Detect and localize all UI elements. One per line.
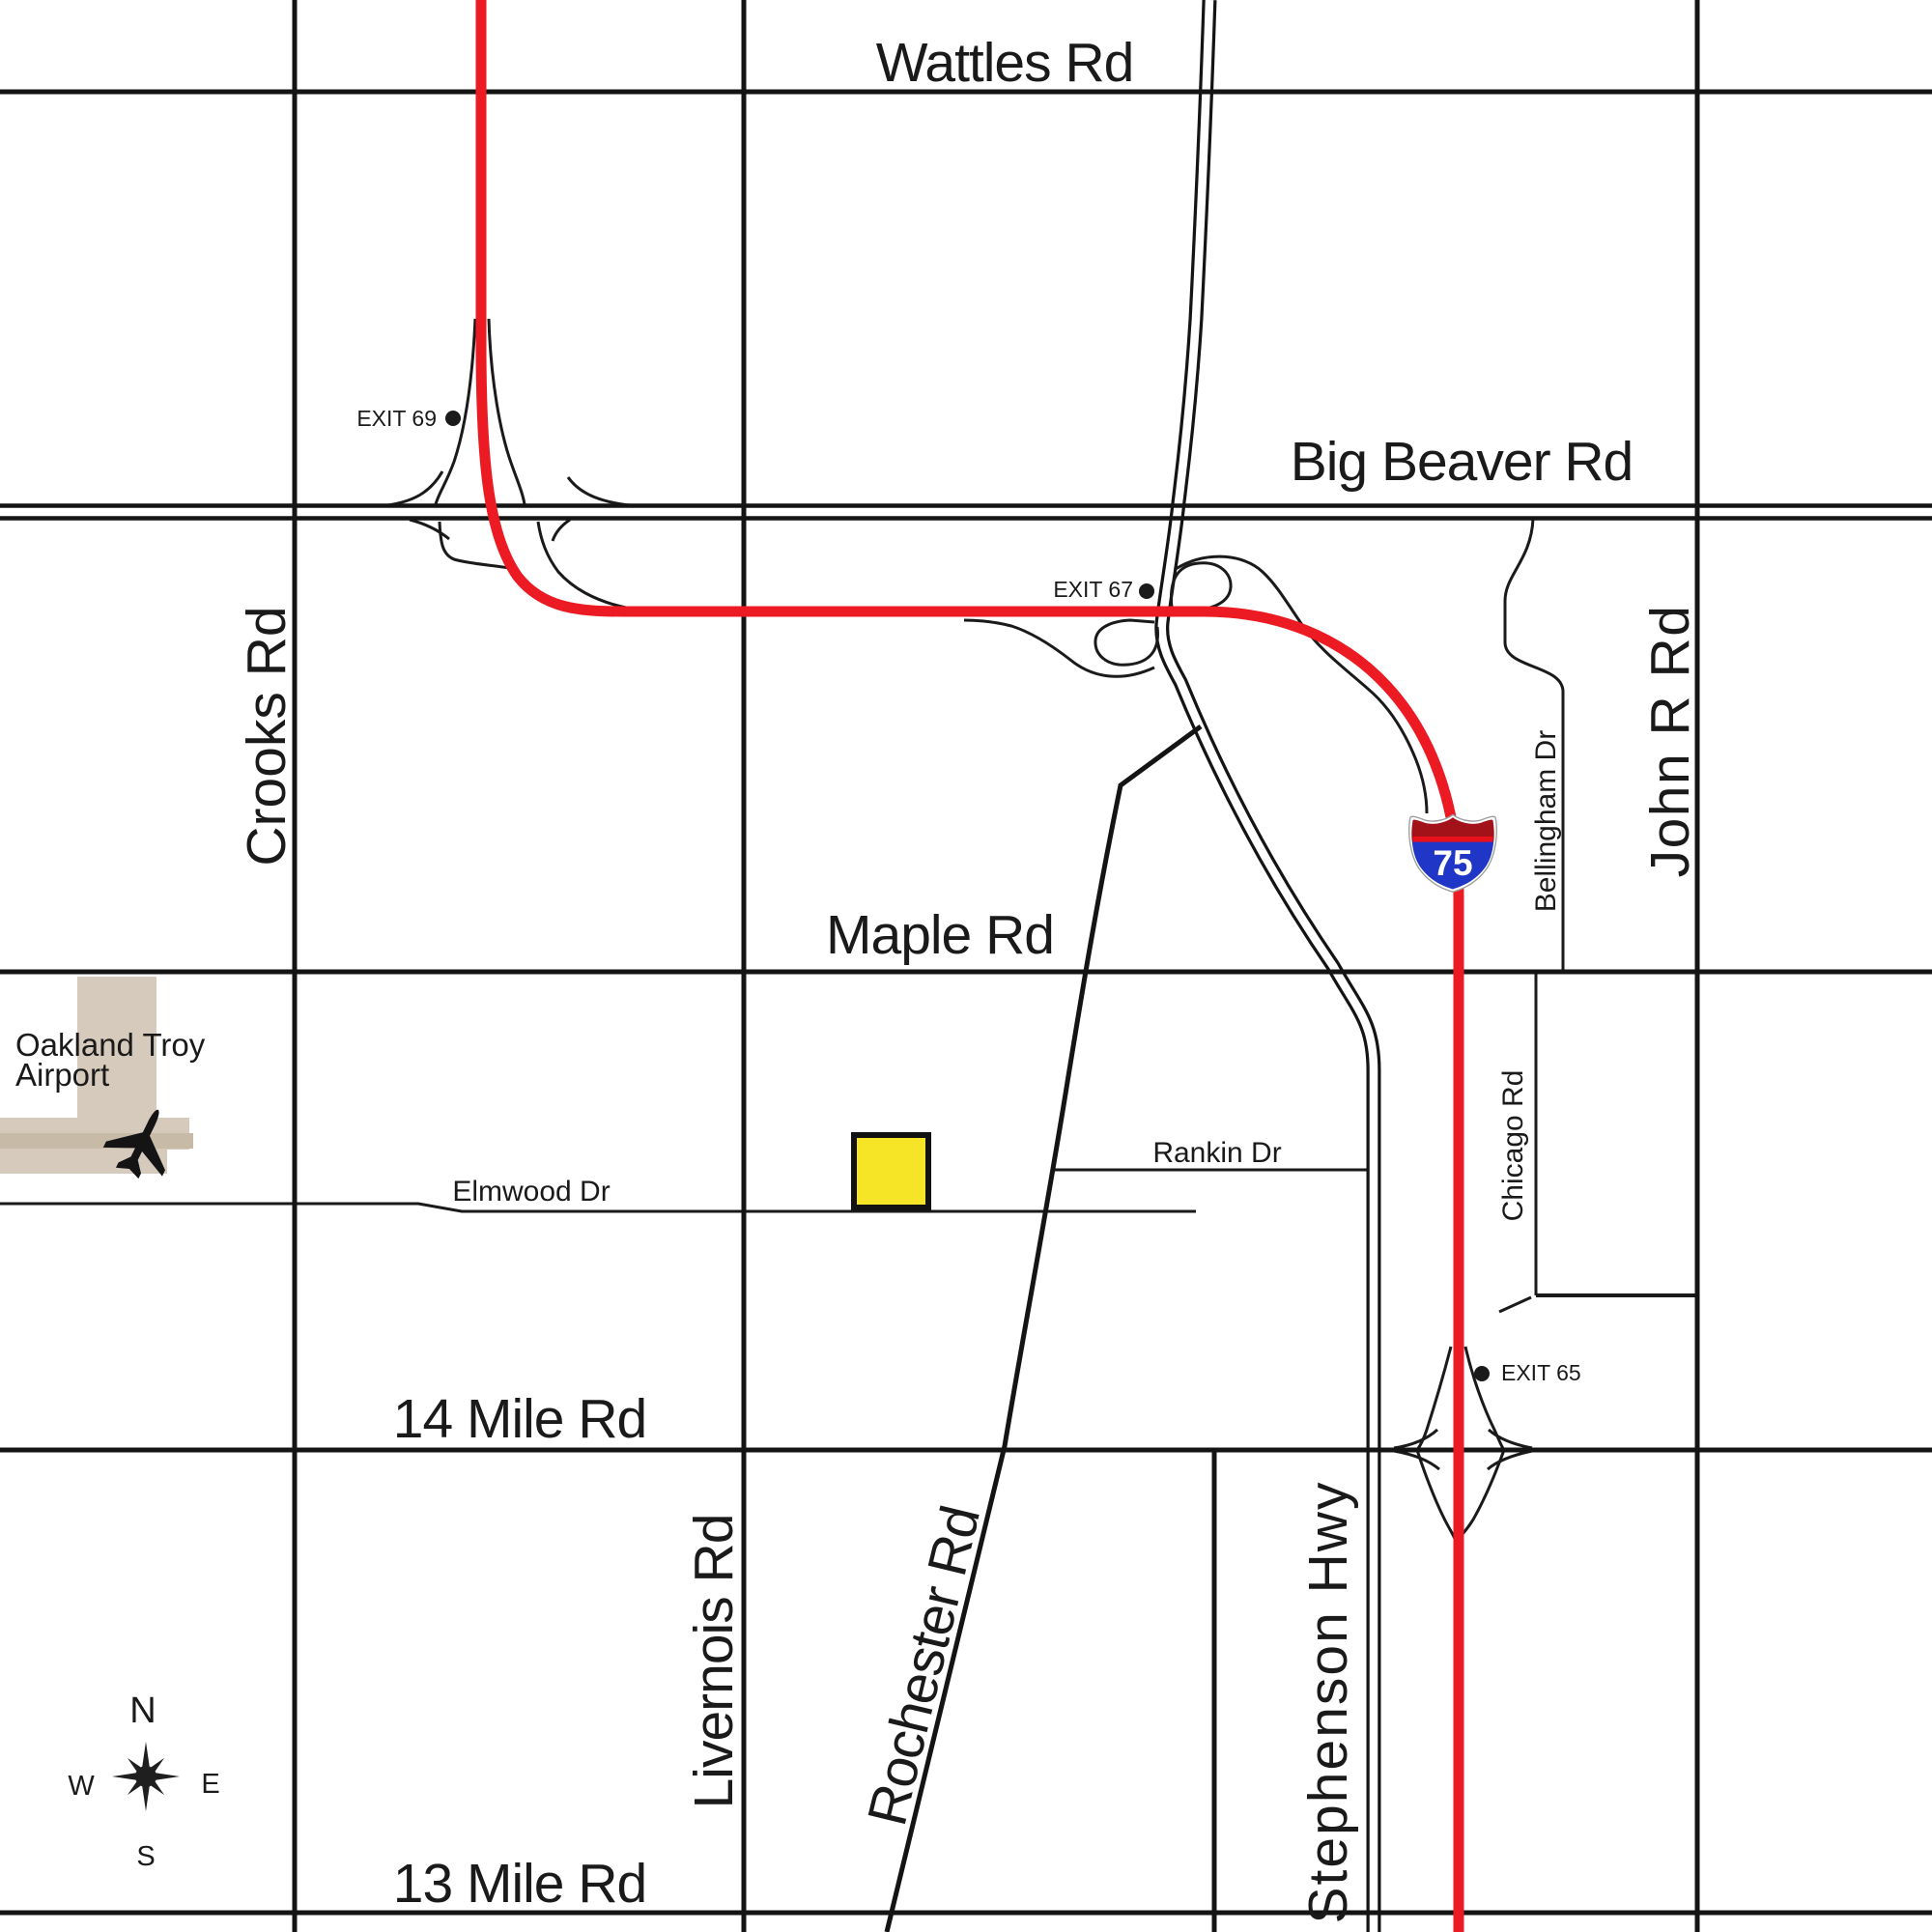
svg-text:EXIT 67: EXIT 67 [1053, 577, 1133, 602]
svg-text:14 Mile Rd: 14 Mile Rd [393, 1388, 646, 1450]
svg-text:EXIT 65: EXIT 65 [1501, 1360, 1581, 1385]
svg-text:John R Rd: John R Rd [1639, 605, 1701, 878]
svg-text:Stephenson Hwy: Stephenson Hwy [1297, 1481, 1359, 1924]
svg-text:Crooks Rd: Crooks Rd [236, 606, 298, 866]
svg-text:Airport: Airport [15, 1057, 109, 1093]
svg-text:Maple Rd: Maple Rd [826, 904, 1054, 966]
svg-text:75: 75 [1433, 843, 1472, 883]
svg-text:Wattles Rd: Wattles Rd [876, 32, 1134, 94]
svg-text:Rankin Dr: Rankin Dr [1152, 1137, 1281, 1169]
svg-text:Big Beaver Rd: Big Beaver Rd [1291, 431, 1634, 493]
svg-text:S: S [136, 1841, 155, 1872]
svg-text:Livernois Rd: Livernois Rd [683, 1515, 745, 1809]
svg-text:13 Mile Rd: 13 Mile Rd [393, 1853, 646, 1915]
svg-text:Bellingham Dr: Bellingham Dr [1530, 730, 1562, 912]
svg-text:E: E [201, 1769, 219, 1800]
svg-text:N: N [129, 1690, 156, 1731]
svg-text:Elmwood Dr: Elmwood Dr [452, 1176, 610, 1207]
svg-text:W: W [68, 1771, 95, 1802]
svg-text:Chicago Rd: Chicago Rd [1497, 1070, 1529, 1222]
svg-text:EXIT 69: EXIT 69 [356, 406, 437, 431]
